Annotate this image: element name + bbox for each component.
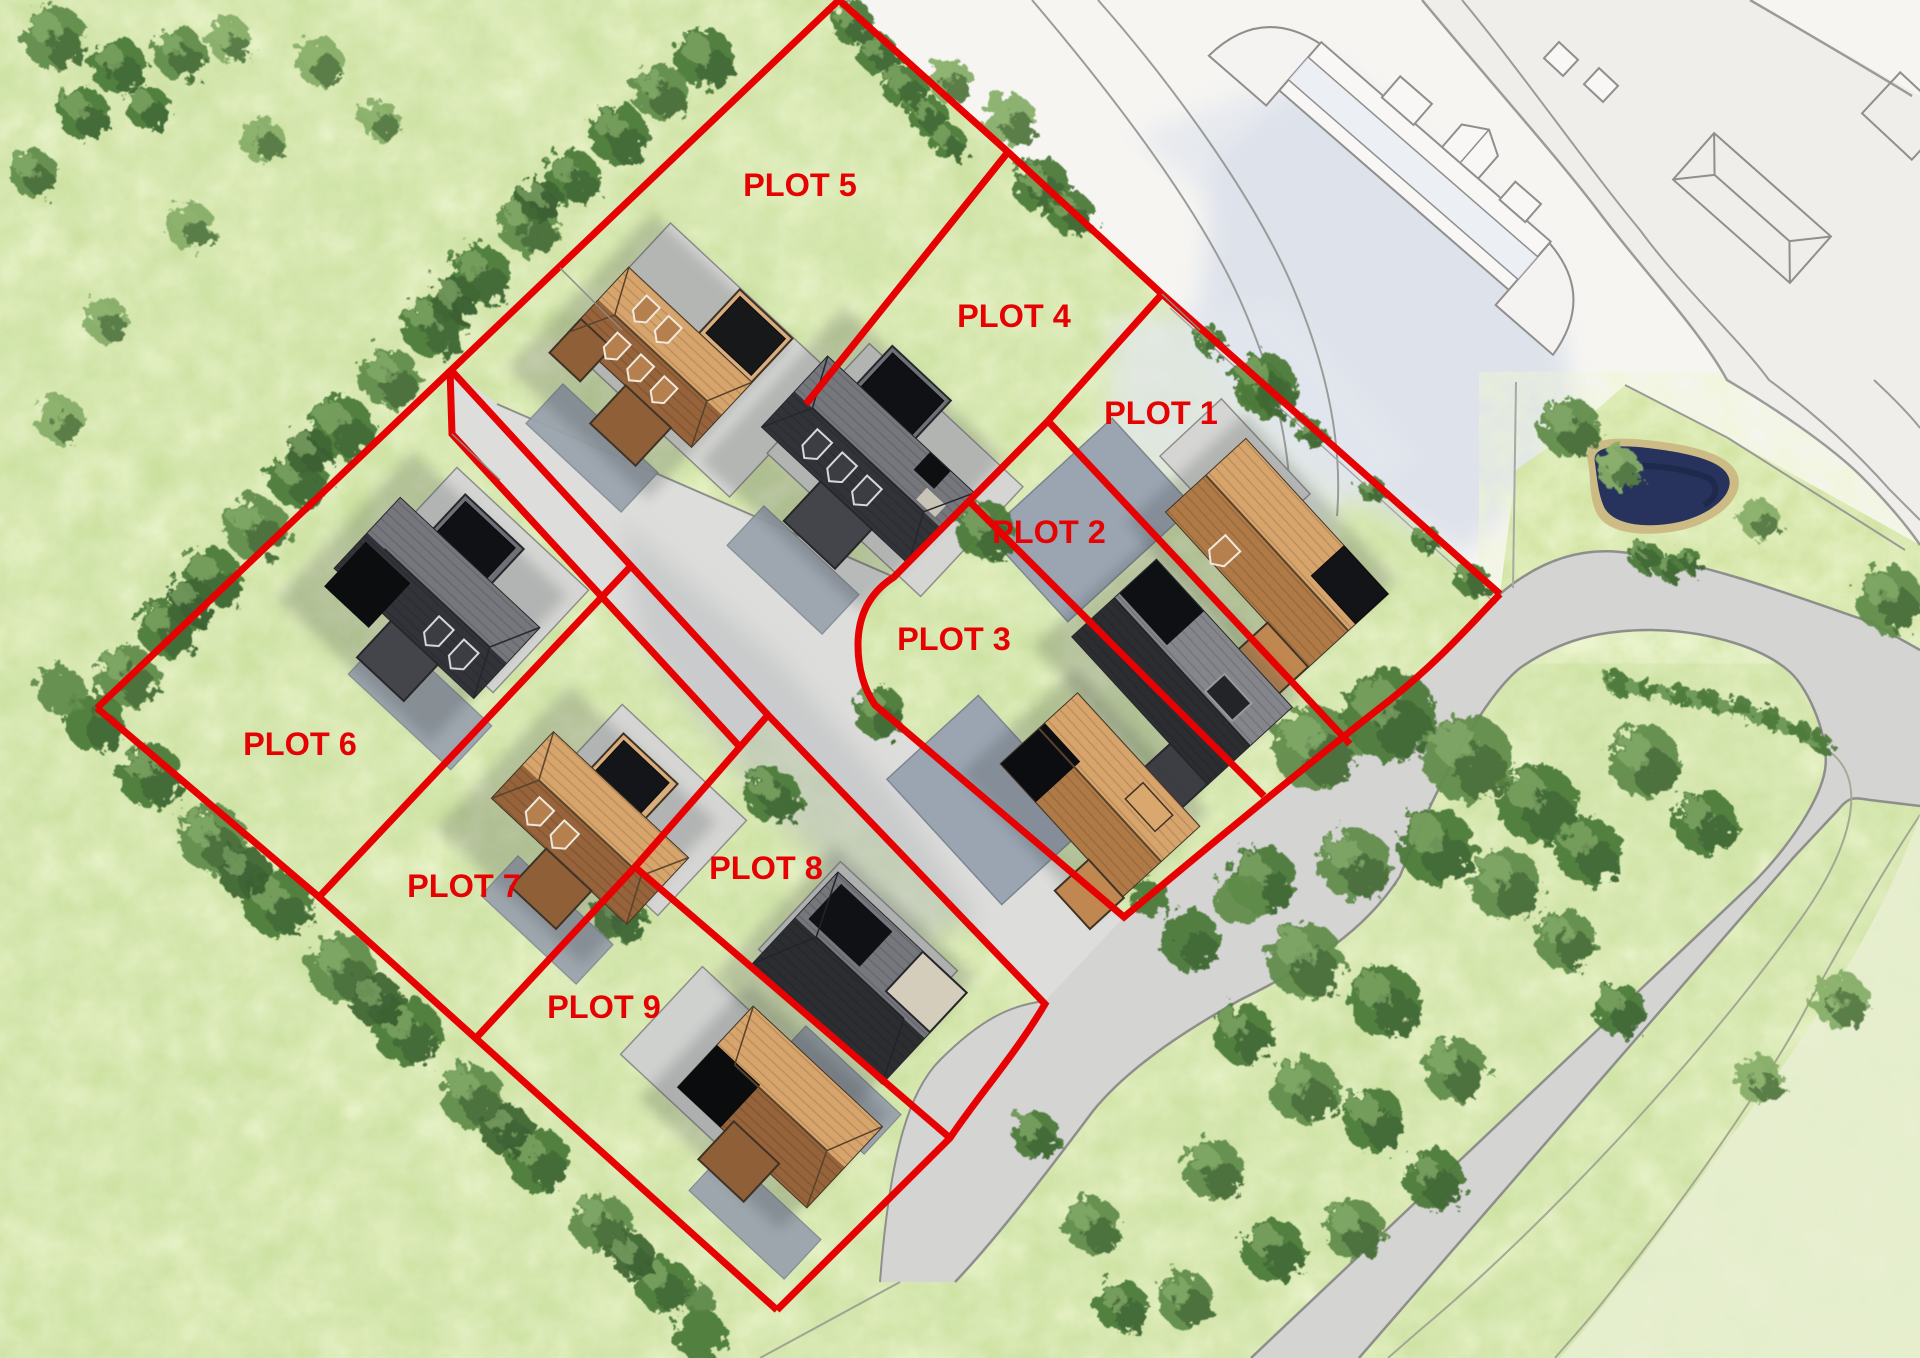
svg-text:PLOT 8: PLOT 8 <box>709 850 823 886</box>
svg-text:PLOT 4: PLOT 4 <box>957 298 1071 334</box>
svg-text:PLOT 9: PLOT 9 <box>547 989 661 1025</box>
svg-text:PLOT 3: PLOT 3 <box>897 621 1011 657</box>
svg-text:PLOT 1: PLOT 1 <box>1104 395 1218 431</box>
svg-text:PLOT 5: PLOT 5 <box>743 167 857 203</box>
svg-text:PLOT 2: PLOT 2 <box>992 514 1106 550</box>
svg-text:PLOT 6: PLOT 6 <box>243 726 357 762</box>
svg-text:PLOT 7: PLOT 7 <box>407 868 521 904</box>
